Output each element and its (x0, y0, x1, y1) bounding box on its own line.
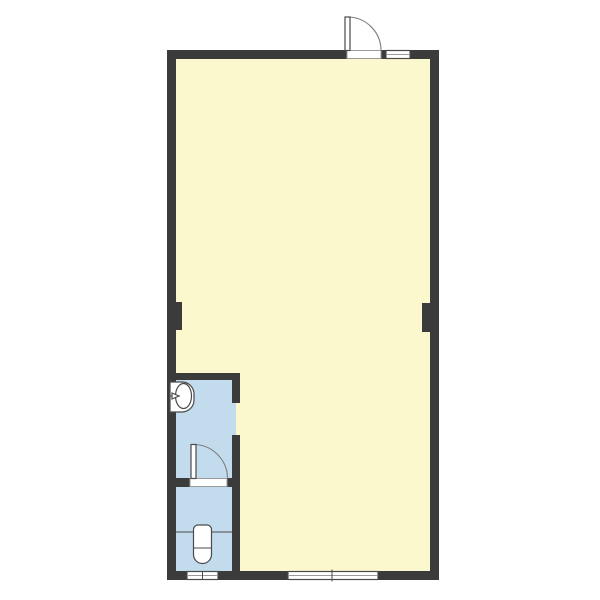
wall-opening (232, 403, 240, 435)
interior-door-leaf (191, 445, 196, 479)
entry-door-leaf (345, 17, 350, 51)
sink-icon (169, 382, 194, 412)
toilet-window-icon (187, 572, 218, 580)
toilet-icon (194, 525, 212, 564)
main-window-icon (288, 570, 378, 582)
floor-plan-canvas (0, 0, 600, 600)
entry-door-icon (345, 17, 381, 59)
toilet-body (194, 525, 212, 564)
entry-door-swing-arc (348, 17, 382, 51)
interior-door-threshold (190, 479, 227, 487)
opening-floor-wet-side (232, 403, 236, 435)
pillar-left-icon (167, 302, 182, 330)
floor-plan (0, 0, 600, 600)
top-window-icon (386, 51, 410, 59)
entry-door-threshold (347, 51, 381, 59)
pillar-right-icon (422, 303, 439, 332)
opening-floor-main-side (236, 403, 240, 435)
